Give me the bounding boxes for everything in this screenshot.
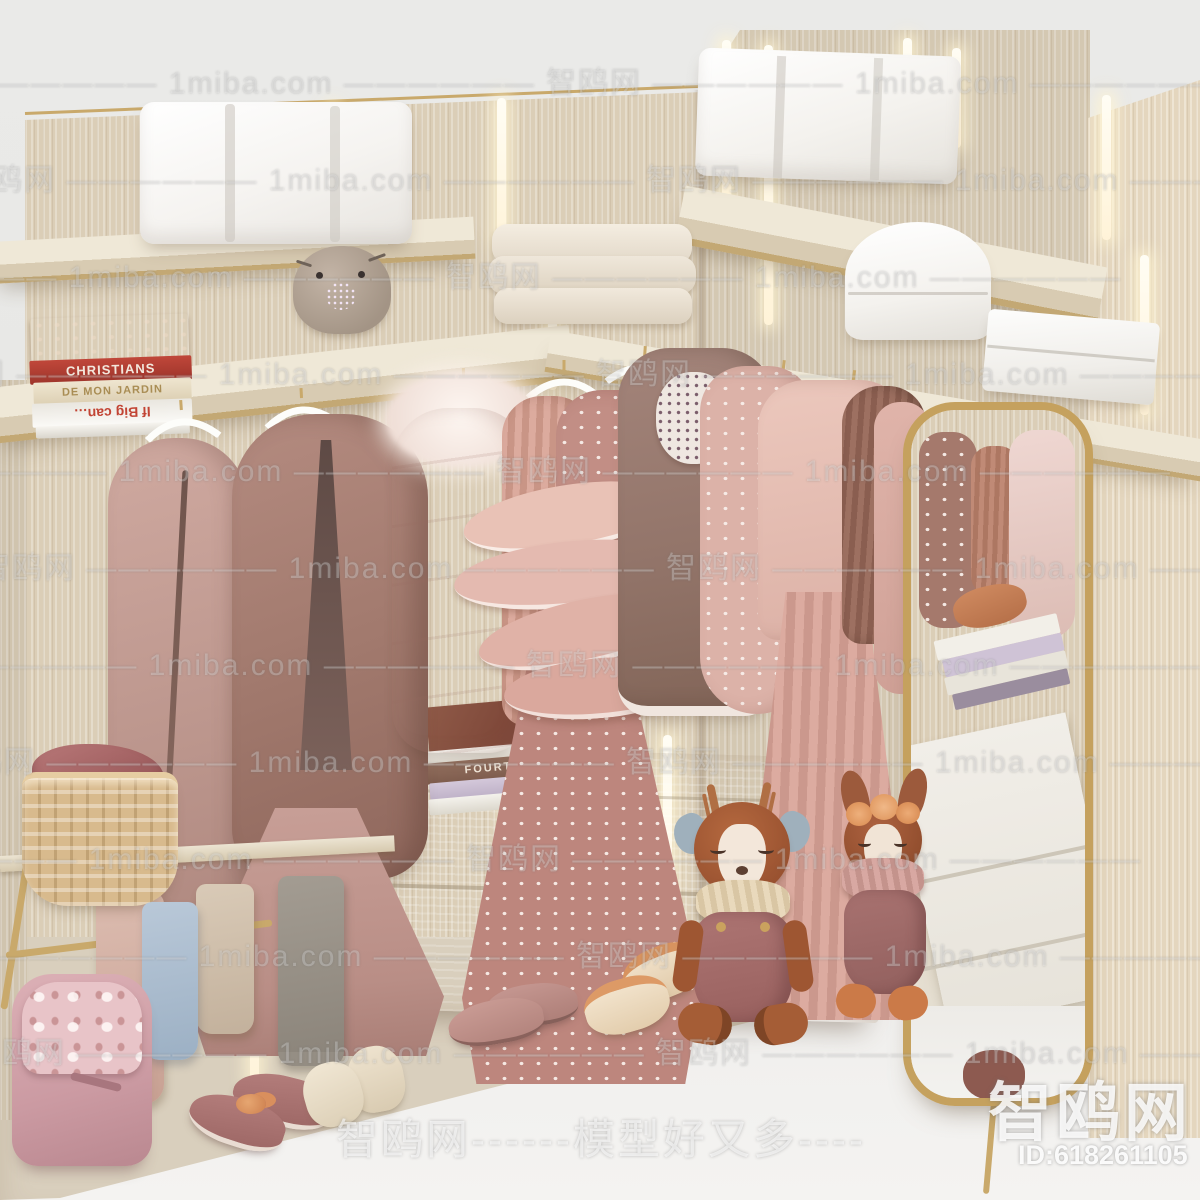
deer-closed-eye (710, 846, 726, 854)
round-hat-box (845, 222, 991, 340)
folded-linen (494, 288, 692, 324)
deer-overall-button (716, 922, 726, 932)
folded-linen-stack (488, 224, 700, 324)
flower-crown-bloom (846, 802, 872, 826)
fabric-storage-box-right (695, 47, 961, 184)
backpack-floral-flap (22, 982, 142, 1074)
pusheen-eye (316, 272, 323, 279)
deer-overall-button (760, 922, 770, 932)
storage-box-strap (330, 106, 340, 242)
flower-crown-bloom (870, 794, 898, 820)
closet-render-scene: CHRISTIANS DE MON JARDIN If Big can… (0, 0, 1200, 1200)
pusheen-eye (358, 271, 365, 278)
deer-nose (736, 866, 748, 875)
watermark-bottom-banner: 智鸥网------模型好又多---- (336, 1106, 866, 1167)
folded-pants-beige (196, 884, 254, 1034)
fawn-closed-eye (894, 840, 907, 847)
deer-closed-eye (758, 846, 774, 854)
fawn-plush-flower-crown (828, 762, 938, 1032)
fawn-closed-eye (858, 840, 871, 847)
fabric-storage-box-left (140, 102, 412, 244)
storage-box-strap (225, 104, 235, 242)
fawn-body (844, 890, 926, 994)
flower-crown-bloom (896, 802, 920, 824)
rattan-basket (22, 772, 178, 906)
watermark-model-id: ID:618261105 (1018, 1140, 1188, 1171)
folded-pants-gray-fringe (278, 876, 344, 1066)
hat-box-lid-seam (848, 292, 988, 295)
led-strip (1102, 95, 1111, 240)
pusheen-donut (326, 282, 356, 310)
clothes-hanger (137, 395, 228, 443)
shoe-bow-orange (236, 1094, 266, 1114)
deer-plush (668, 762, 818, 1062)
